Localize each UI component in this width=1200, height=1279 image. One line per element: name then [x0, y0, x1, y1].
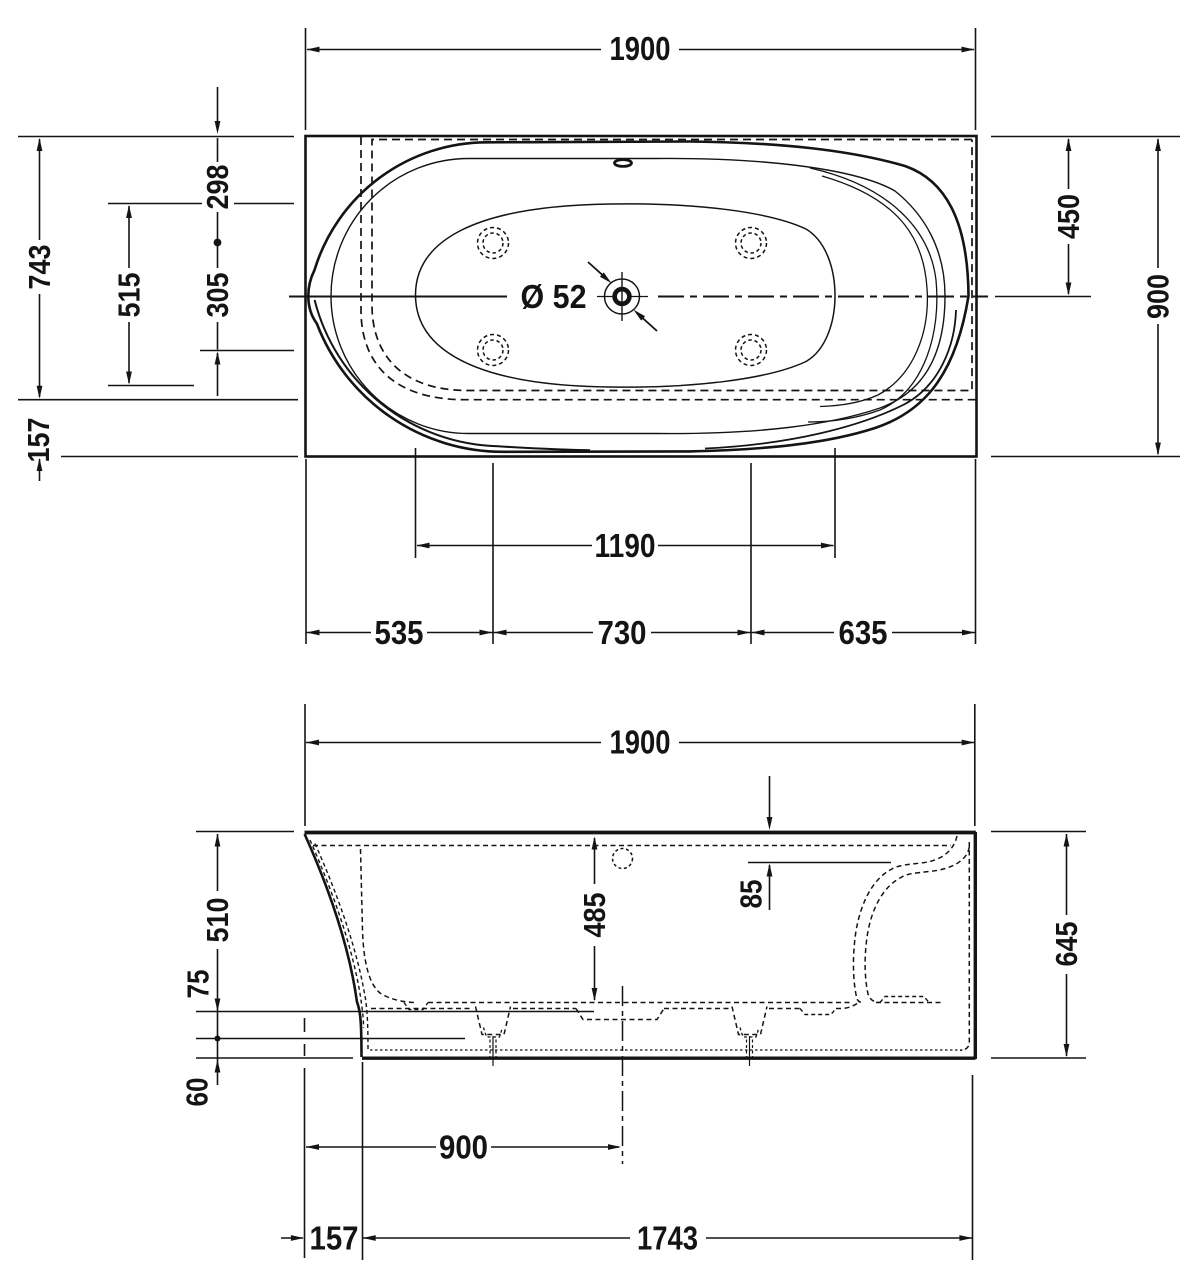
svg-text:635: 635	[839, 614, 888, 651]
svg-text:485: 485	[577, 893, 612, 938]
svg-text:450: 450	[1051, 194, 1086, 239]
svg-text:900: 900	[1141, 274, 1176, 319]
svg-text:900: 900	[439, 1129, 488, 1166]
svg-text:Ø 52: Ø 52	[521, 278, 587, 315]
svg-text:157: 157	[310, 1220, 359, 1257]
svg-text:60: 60	[180, 1078, 215, 1107]
svg-text:510: 510	[200, 898, 235, 943]
svg-text:305: 305	[200, 273, 235, 318]
svg-text:645: 645	[1049, 922, 1084, 967]
svg-text:298: 298	[200, 165, 235, 210]
svg-text:157: 157	[21, 418, 56, 463]
svg-text:1900: 1900	[610, 724, 671, 761]
svg-text:535: 535	[375, 614, 424, 651]
svg-text:515: 515	[112, 273, 147, 318]
svg-text:85: 85	[734, 880, 769, 909]
svg-text:743: 743	[22, 245, 57, 290]
svg-text:1743: 1743	[637, 1220, 698, 1257]
svg-text:730: 730	[598, 614, 647, 651]
svg-text:1900: 1900	[610, 30, 671, 67]
svg-text:75: 75	[181, 970, 216, 999]
svg-text:1190: 1190	[595, 527, 656, 564]
